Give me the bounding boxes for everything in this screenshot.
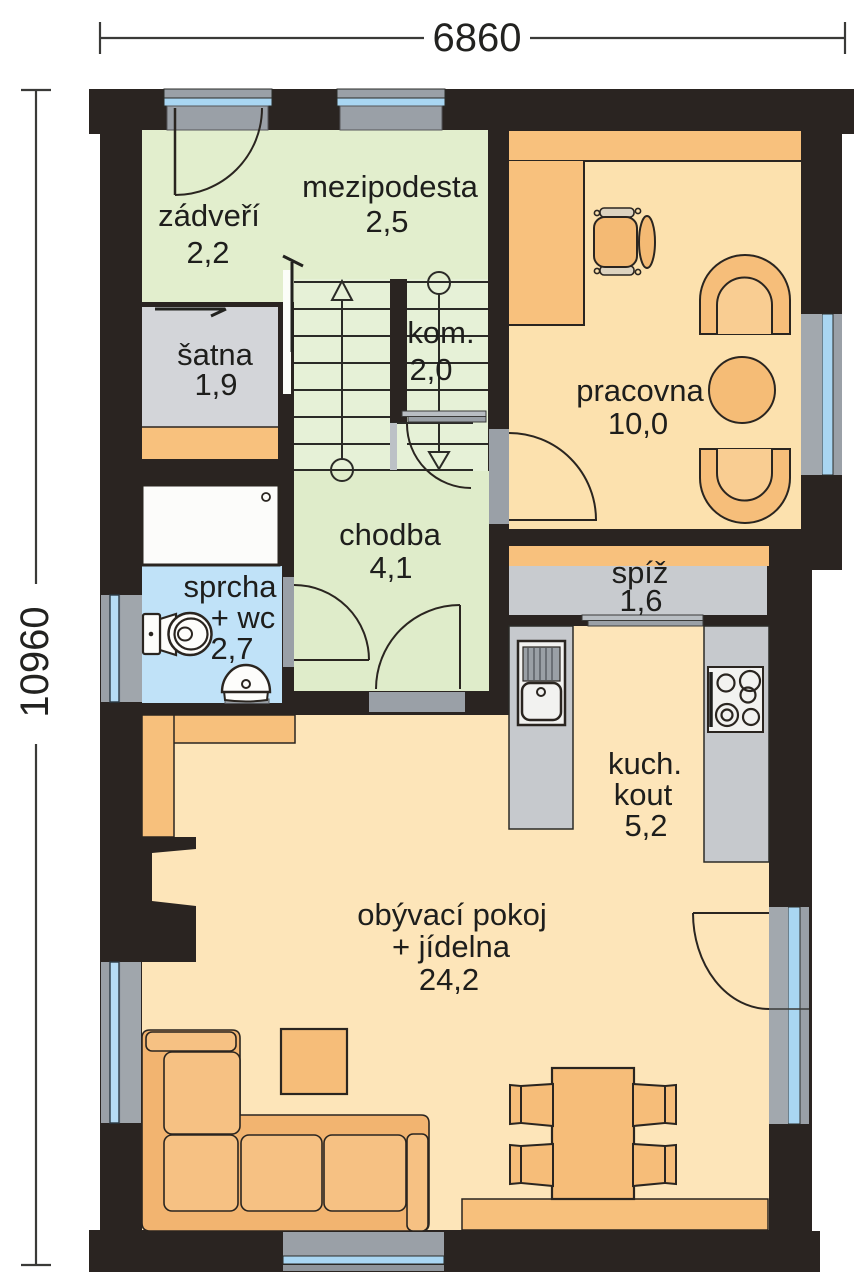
svg-text:obývací pokoj: obývací pokoj <box>357 897 547 932</box>
svg-text:4,1: 4,1 <box>369 550 412 585</box>
svg-text:10960: 10960 <box>13 606 57 717</box>
svg-text:2,0: 2,0 <box>409 352 452 387</box>
svg-text:5,2: 5,2 <box>624 808 667 843</box>
svg-text:pracovna: pracovna <box>576 373 704 408</box>
svg-text:24,2: 24,2 <box>419 962 479 997</box>
svg-text:1,9: 1,9 <box>194 367 237 402</box>
svg-text:kuch.: kuch. <box>608 746 682 781</box>
svg-text:10,0: 10,0 <box>608 406 668 441</box>
svg-text:6860: 6860 <box>433 16 522 60</box>
svg-text:sprcha: sprcha <box>183 569 277 604</box>
svg-text:+ jídelna: + jídelna <box>392 929 511 964</box>
svg-text:kout: kout <box>614 777 673 812</box>
svg-text:1,6: 1,6 <box>619 583 662 618</box>
svg-text:kom.: kom. <box>407 315 474 350</box>
svg-text:chodba: chodba <box>339 517 441 552</box>
svg-text:2,7: 2,7 <box>210 631 253 666</box>
svg-text:zádveří: zádveří <box>158 198 260 233</box>
svg-text:mezipodesta: mezipodesta <box>302 169 479 204</box>
svg-text:+ wc: + wc <box>211 600 276 635</box>
svg-text:2,5: 2,5 <box>365 204 408 239</box>
svg-text:2,2: 2,2 <box>186 235 229 270</box>
